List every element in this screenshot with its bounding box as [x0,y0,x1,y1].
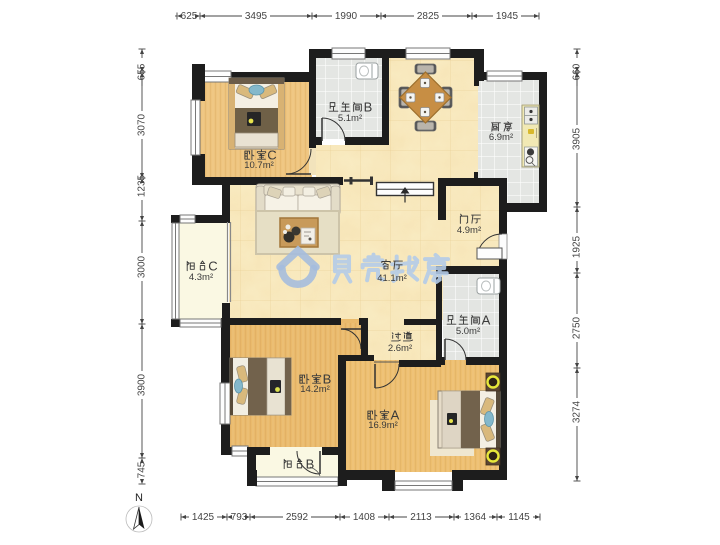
svg-text:3905: 3905 [572,127,583,150]
svg-text:793: 793 [231,512,248,523]
svg-text:5.0m²: 5.0m² [456,326,480,337]
svg-text:1145: 1145 [508,512,530,523]
svg-text:745: 745 [137,461,148,478]
svg-text:3000: 3000 [137,255,148,278]
svg-text:2825: 2825 [417,11,440,22]
svg-text:14.2m²: 14.2m² [300,384,330,395]
svg-text:3274: 3274 [572,400,583,423]
svg-text:4.3m²: 4.3m² [189,272,213,283]
svg-text:1925: 1925 [572,235,583,258]
svg-text:1408: 1408 [353,512,376,523]
svg-text:3495: 3495 [245,11,268,22]
svg-text:A: A [482,312,491,327]
svg-text:2113: 2113 [410,512,432,523]
svg-text:3070: 3070 [137,113,148,136]
svg-text:B: B [306,456,315,471]
svg-text:N: N [135,492,143,504]
svg-text:3900: 3900 [137,373,148,396]
svg-text:4.9m²: 4.9m² [457,225,481,236]
svg-text:1425: 1425 [192,512,215,523]
svg-text:5.1m²: 5.1m² [338,113,362,124]
svg-text:6.9m²: 6.9m² [489,132,513,143]
svg-text:16.9m²: 16.9m² [368,420,398,431]
svg-text:1990: 1990 [335,11,358,22]
svg-text:2.6m²: 2.6m² [388,343,412,354]
svg-text:10.7m²: 10.7m² [244,160,274,171]
svg-text:625: 625 [181,11,198,22]
svg-text:1364: 1364 [464,512,487,523]
svg-text:41.1m²: 41.1m² [377,273,407,284]
svg-text:2592: 2592 [286,512,309,523]
svg-text:1945: 1945 [496,11,519,22]
svg-text:B: B [364,99,373,114]
svg-text:2750: 2750 [572,316,583,339]
svg-text:1235: 1235 [137,174,148,197]
